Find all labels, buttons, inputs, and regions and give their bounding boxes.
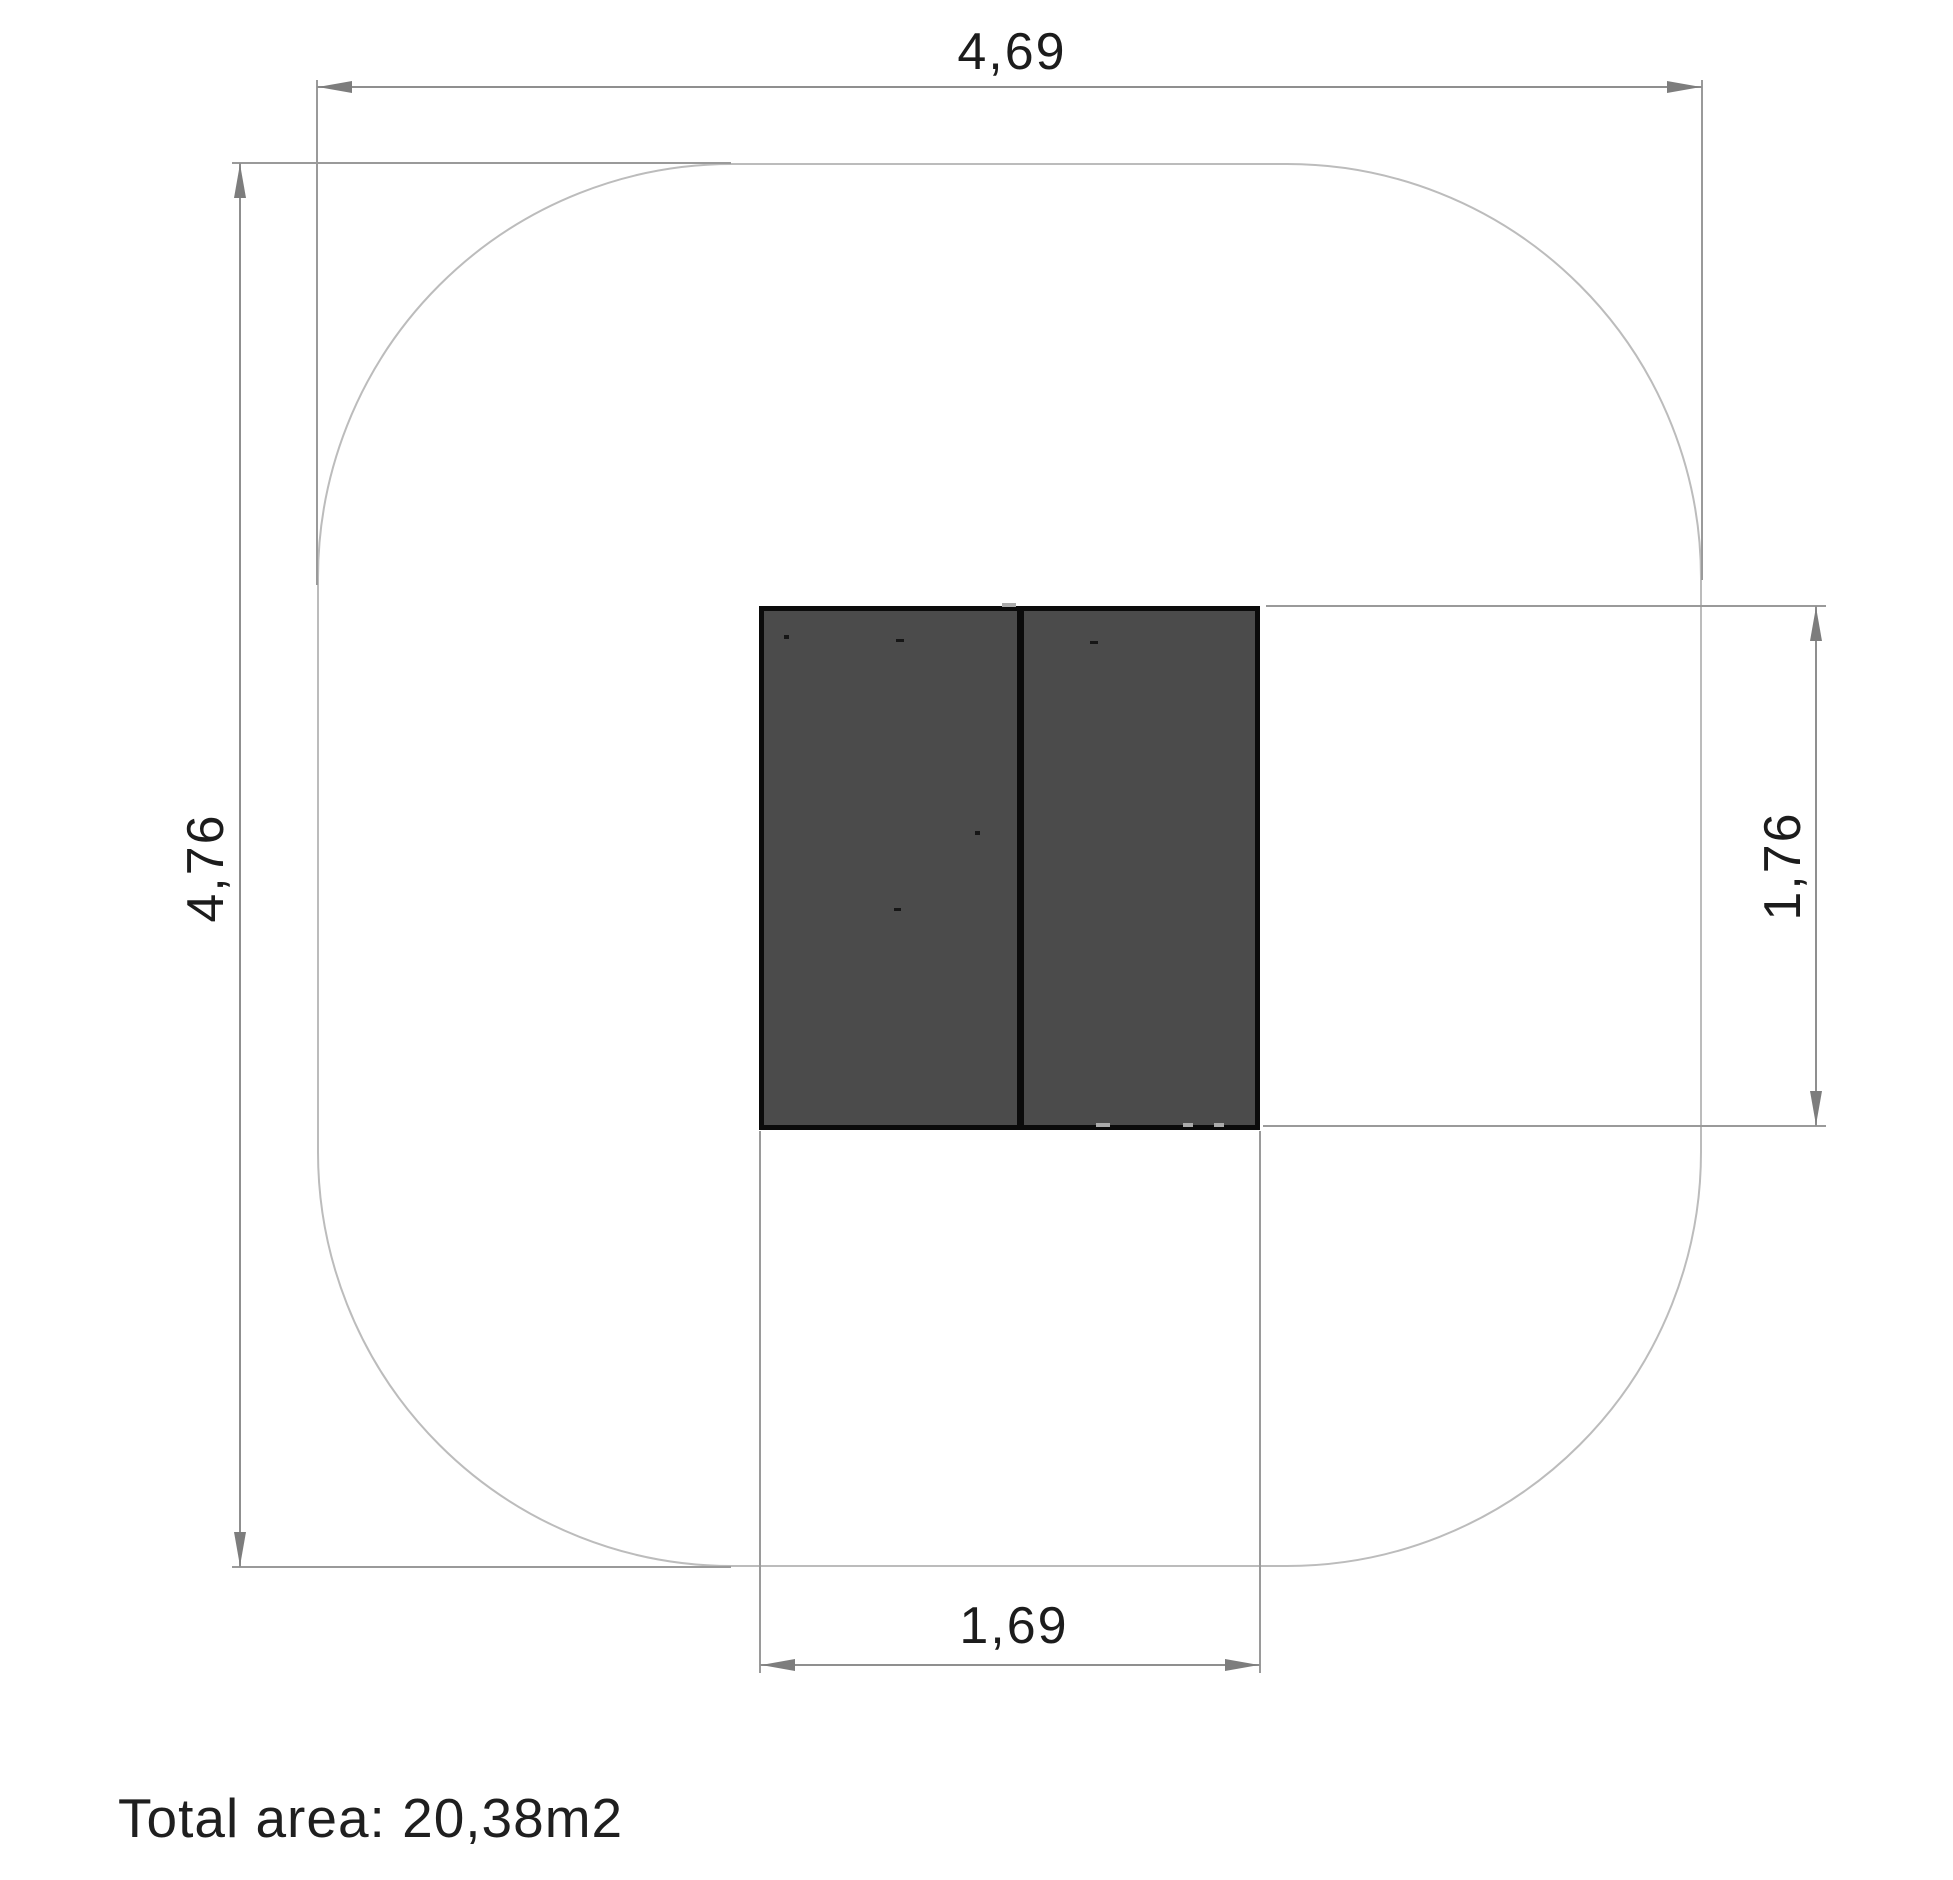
ext-line-bottom-left xyxy=(759,1131,761,1673)
arrowhead-up-icon xyxy=(1810,607,1822,641)
fastener-speck xyxy=(975,831,980,835)
arrowhead-down-icon xyxy=(234,1532,246,1566)
dim-equipment-height-label: 1,76 xyxy=(1753,811,1813,920)
ext-line-right-top xyxy=(1266,605,1826,607)
dim-total-width-label: 4,69 xyxy=(957,22,1066,82)
edge-notch xyxy=(1214,1123,1224,1127)
fastener-speck xyxy=(896,639,904,642)
ext-line-left-top xyxy=(232,162,731,164)
arrowhead-left-icon xyxy=(761,1659,795,1671)
dimension-line-equipment-height xyxy=(1815,606,1817,1126)
edge-notch xyxy=(1183,1123,1193,1127)
edge-notch xyxy=(1002,603,1016,607)
fastener-speck xyxy=(784,635,789,639)
ext-line-left-bottom xyxy=(232,1566,731,1568)
edge-notch xyxy=(1096,1123,1110,1127)
dimension-line-equipment-width xyxy=(760,1664,1260,1666)
dim-equipment-width-label: 1,69 xyxy=(959,1596,1068,1656)
arrowhead-down-icon xyxy=(1810,1091,1822,1125)
ext-line-right-bottom xyxy=(1263,1125,1826,1127)
fastener-speck xyxy=(894,908,901,911)
fastener-speck xyxy=(1090,641,1098,644)
dim-total-height-label: 4,76 xyxy=(176,813,236,922)
ext-line-top-right xyxy=(1701,80,1703,580)
technical-drawing-canvas: 4,69 4,76 1,76 1,69 Total area: 20,38m2 xyxy=(0,0,1953,1880)
dimension-line-total-height xyxy=(239,163,241,1567)
arrowhead-left-icon xyxy=(318,81,352,93)
arrowhead-right-icon xyxy=(1667,81,1701,93)
ext-line-top-left xyxy=(316,80,318,585)
total-area-text: Total area: 20,38m2 xyxy=(118,1786,623,1850)
dimension-line-total-width xyxy=(317,86,1702,88)
equipment-footprint xyxy=(759,606,1260,1130)
equipment-divider xyxy=(1017,606,1024,1130)
arrowhead-right-icon xyxy=(1225,1659,1259,1671)
arrowhead-up-icon xyxy=(234,164,246,198)
ext-line-bottom-right xyxy=(1259,1131,1261,1673)
